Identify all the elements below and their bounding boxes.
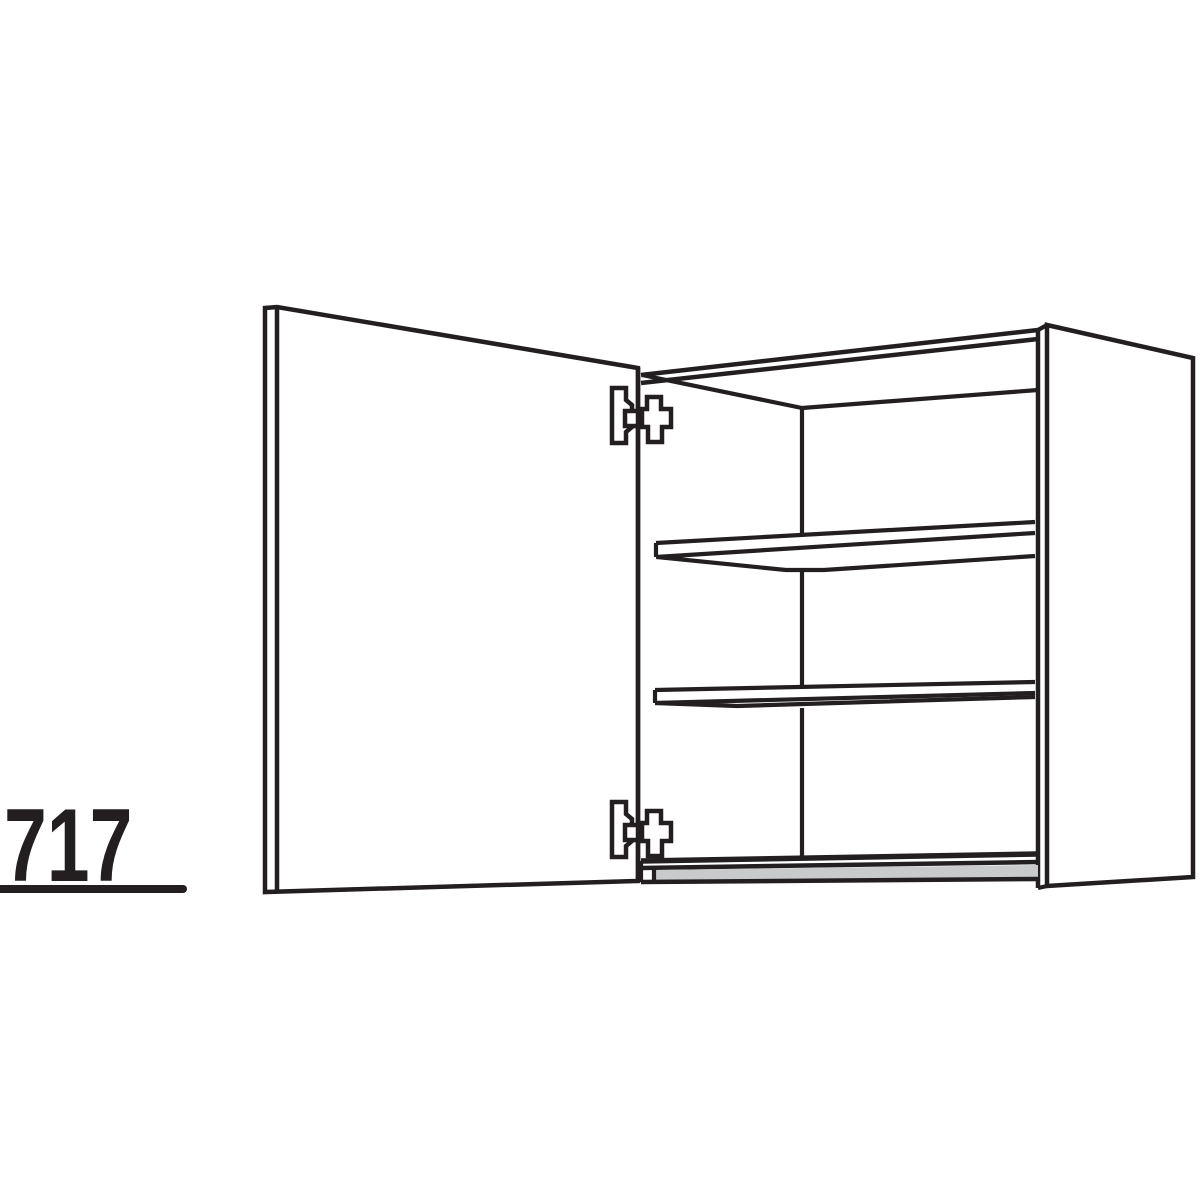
hinge-top-arm — [642, 397, 671, 442]
wall-cabinet-diagram: 717 — [0, 0, 1200, 1200]
bottom-lower-edge — [641, 879, 1038, 882]
drawing-shapes-layer — [0, 307, 1193, 892]
bottom-right-corner-cap — [1038, 886, 1047, 888]
hinge-bottom-arm — [642, 811, 671, 856]
shelf-lower-top-edge — [655, 682, 1035, 690]
interior-top-left-edge — [642, 375, 802, 408]
shelf-upper-bottom-edge — [657, 556, 1035, 570]
interior-top-back-edge — [802, 390, 1038, 408]
top-front-edge-inner — [641, 339, 1038, 383]
cabinet-line-drawing: 717 — [0, 0, 1200, 1200]
bottom-back-edge — [641, 854, 1038, 861]
shelf-upper-front-edge — [656, 533, 1035, 557]
side-panel-outer-face — [1047, 325, 1193, 886]
top-front-edge-outer — [641, 330, 1038, 375]
door-panel — [265, 307, 638, 892]
dimension-label: 717 — [4, 788, 132, 904]
shelf-upper-top-edge — [656, 522, 1035, 543]
